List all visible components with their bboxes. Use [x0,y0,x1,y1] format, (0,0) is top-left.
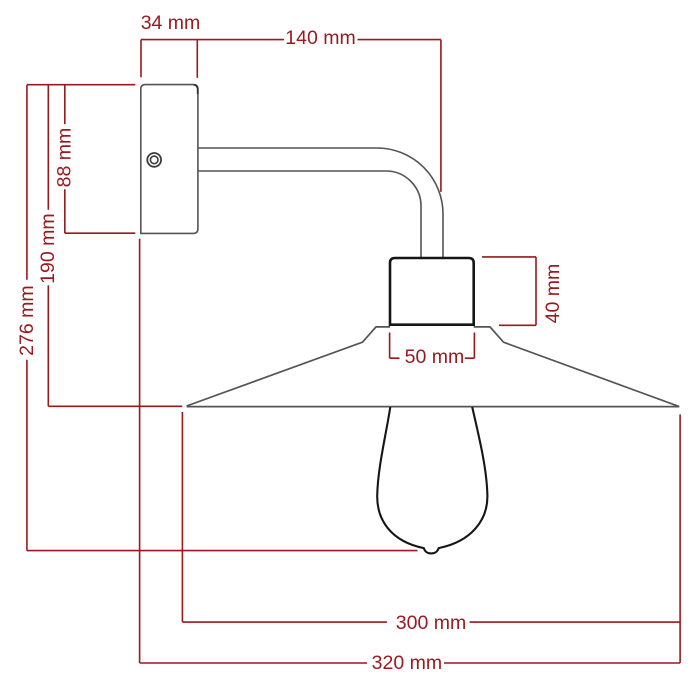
svg-text:276 mm: 276 mm [16,285,38,355]
svg-text:40 mm: 40 mm [542,264,564,324]
svg-text:140 mm: 140 mm [285,27,355,49]
svg-text:320 mm: 320 mm [372,652,442,674]
svg-text:190 mm: 190 mm [37,213,59,283]
svg-text:88 mm: 88 mm [54,128,76,188]
svg-text:34 mm: 34 mm [141,12,201,34]
svg-text:50 mm: 50 mm [405,346,465,368]
svg-text:300 mm: 300 mm [396,612,466,634]
